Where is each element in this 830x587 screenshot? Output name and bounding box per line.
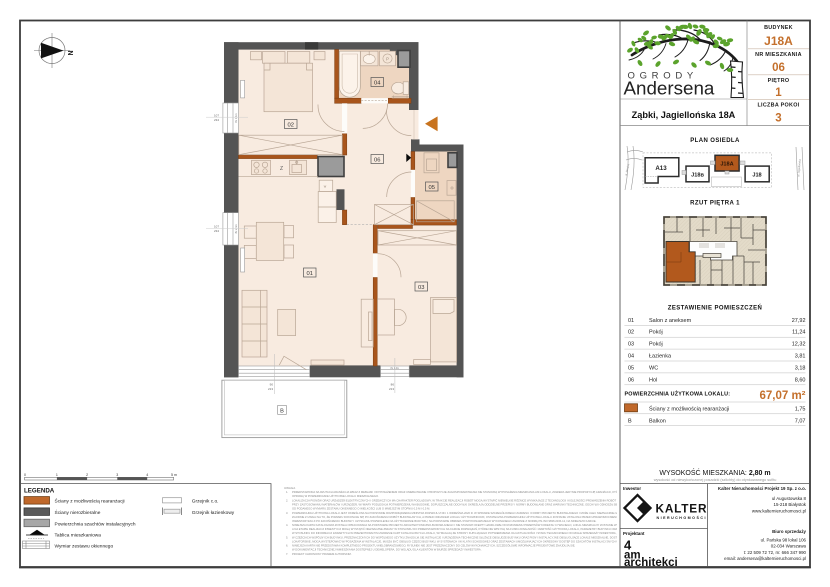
svg-text:107: 107 <box>214 113 219 117</box>
svg-text:90: 90 <box>270 383 274 387</box>
svg-text:Wymiar zestawu okiennego: Wymiar zestawu okiennego <box>55 543 114 549</box>
svg-text:02: 02 <box>628 330 634 336</box>
svg-text:7,07: 7,07 <box>795 418 806 424</box>
svg-text:B: B <box>280 408 284 414</box>
svg-text:BUDYNEK: BUDYNEK <box>764 25 793 31</box>
svg-text:P: P <box>386 56 389 61</box>
svg-text:04: 04 <box>374 80 381 86</box>
svg-text:03: 03 <box>418 285 424 291</box>
svg-text:8,60: 8,60 <box>795 377 806 383</box>
svg-text:Hol: Hol <box>649 377 657 383</box>
svg-text:4: 4 <box>146 473 148 477</box>
svg-text:7.: 7. <box>286 552 288 556</box>
svg-text:213: 213 <box>268 387 273 391</box>
svg-text:5 m: 5 m <box>171 473 177 477</box>
svg-text:Grzejnik łazienkowy: Grzejnik łazienkowy <box>192 510 235 516</box>
svg-text:ul Augustowska 8: ul Augustowska 8 <box>772 496 807 501</box>
svg-text:email: andersena@kalternieruch: email: andersena@kalternieruchomosci.pl <box>724 556 806 561</box>
svg-text:B: B <box>628 418 632 424</box>
svg-text:06: 06 <box>772 62 785 74</box>
svg-text:N: N <box>68 50 75 55</box>
svg-text:27,92: 27,92 <box>792 318 806 324</box>
svg-text:1: 1 <box>56 473 58 477</box>
svg-text:t: 22 509 72 72, m: 666 347 99: t: 22 509 72 72, m: 666 347 990 <box>744 550 807 555</box>
svg-text:Pokój: Pokój <box>649 342 663 348</box>
svg-text:2.: 2. <box>286 499 288 503</box>
svg-text:1: 1 <box>775 87 782 99</box>
svg-text:J18ʙ: J18ʙ <box>691 173 704 179</box>
svg-text:05: 05 <box>628 365 634 371</box>
svg-text:Ściany z możliwością rearanżac: Ściany z możliwością rearanżacji <box>649 405 729 413</box>
svg-text:04: 04 <box>628 354 634 360</box>
svg-text:107: 107 <box>214 225 219 229</box>
svg-text:06: 06 <box>628 377 634 383</box>
svg-text:Andersena: Andersena <box>624 78 715 99</box>
svg-text:1.: 1. <box>286 490 288 494</box>
svg-text:11,24: 11,24 <box>792 330 805 336</box>
svg-text:RZUT PIĘTRA 1: RZUT PIĘTRA 1 <box>690 201 740 207</box>
svg-text:01: 01 <box>306 271 312 277</box>
svg-text:LEGENDA: LEGENDA <box>24 488 55 495</box>
svg-text:05: 05 <box>428 185 434 191</box>
svg-text:8x 1.1m: 8x 1.1m <box>234 113 238 122</box>
svg-text:4.: 4. <box>286 523 288 527</box>
svg-text:5.: 5. <box>286 535 288 539</box>
svg-text:POWIERZCHNIA UŻYTKOWA LOKALU:: POWIERZCHNIA UŻYTKOWA LOKALU: <box>625 391 731 398</box>
svg-text:2: 2 <box>86 473 88 477</box>
svg-text:J18: J18 <box>752 173 761 179</box>
svg-text:3: 3 <box>775 113 781 125</box>
svg-text:86: 86 <box>391 383 395 387</box>
svg-text:wysokość od niewykończonej pos: wysokość od niewykończonej posadzki (szl… <box>654 478 777 482</box>
svg-text:PIĘTRO: PIĘTRO <box>768 78 790 84</box>
svg-text:UWAGA: UWAGA <box>284 486 295 490</box>
svg-text:Tablica mieszkaniowa: Tablica mieszkaniowa <box>55 533 102 539</box>
svg-text:12,32: 12,32 <box>792 342 806 348</box>
svg-text:15-218 Białystok: 15-218 Białystok <box>774 502 807 507</box>
svg-text:3,18: 3,18 <box>795 365 806 371</box>
svg-text:www.kalternieruchomosci.pl: www.kalternieruchomosci.pl <box>752 508 806 513</box>
svg-text:01: 01 <box>628 318 634 324</box>
svg-text:Inwestor: Inwestor <box>623 486 641 491</box>
svg-text:Balkon: Balkon <box>649 418 666 424</box>
svg-text:234: 234 <box>214 229 219 233</box>
svg-text:PLAN OSIEDLA: PLAN OSIEDLA <box>690 138 740 144</box>
svg-text:Łazienka: Łazienka <box>649 354 672 360</box>
svg-text:3,81: 3,81 <box>795 354 806 360</box>
svg-text:Pokój: Pokój <box>649 330 663 336</box>
svg-text:06: 06 <box>374 157 380 163</box>
svg-text:Z: Z <box>280 166 283 172</box>
svg-text:Powierzchnia szachtów instalac: Powierzchnia szachtów instalacyjnych <box>55 521 136 527</box>
svg-text:J18A: J18A <box>720 162 733 168</box>
svg-text:A13: A13 <box>655 165 667 172</box>
svg-text:1,75: 1,75 <box>795 407 806 413</box>
svg-text:3: 3 <box>116 473 118 477</box>
svg-text:02-034 Warszawa: 02-034 Warszawa <box>771 544 807 549</box>
svg-text:NR MIESZKANIA: NR MIESZKANIA <box>755 52 802 58</box>
svg-text:Grzejnik c.o.: Grzejnik c.o. <box>192 499 219 505</box>
svg-text:67,07 m²: 67,07 m² <box>759 390 805 402</box>
svg-text:LICZBA POKOI: LICZBA POKOI <box>757 103 799 109</box>
svg-text:KALTER: KALTER <box>656 502 708 516</box>
svg-text:NIERUCHOMOŚCI: NIERUCHOMOŚCI <box>657 515 707 520</box>
svg-text:03: 03 <box>628 342 634 348</box>
svg-text:Salon z aneksem: Salon z aneksem <box>649 318 692 324</box>
svg-text:PROJEKT CHRONIONY PRAWEM AUTOR: PROJEKT CHRONIONY PRAWEM AUTORSKIM. <box>292 552 352 556</box>
svg-text:J18A: J18A <box>764 34 793 48</box>
svg-text:WC: WC <box>649 365 658 371</box>
svg-text:213: 213 <box>389 387 394 391</box>
svg-text:234: 234 <box>214 118 219 122</box>
svg-text:architekci: architekci <box>624 557 678 569</box>
svg-text:02: 02 <box>287 122 293 128</box>
svg-text:Kalter Nieruchomości Projekt 1: Kalter Nieruchomości Projekt 19 Sp. z o.… <box>718 486 806 491</box>
svg-text:WYSOKOŚĆ MIESZKANIA: 2,80 m: WYSOKOŚĆ MIESZKANIA: 2,80 m <box>659 468 770 477</box>
svg-text:3.: 3. <box>286 511 288 515</box>
svg-text:Projektant: Projektant <box>623 531 645 536</box>
svg-text:Biuro sprzedaży: Biuro sprzedaży <box>772 529 806 534</box>
svg-text:Ząbki, Jagiellońska 18A: Ząbki, Jagiellońska 18A <box>632 110 736 120</box>
svg-text:6.: 6. <box>286 544 288 548</box>
svg-text:ul. Pańska 98 lokal 106: ul. Pańska 98 lokal 106 <box>761 538 807 543</box>
svg-text:0: 0 <box>24 473 26 477</box>
svg-text:ZESTAWIENIE POMIESZCZEŃ: ZESTAWIENIE POMIESZCZEŃ <box>668 304 762 312</box>
